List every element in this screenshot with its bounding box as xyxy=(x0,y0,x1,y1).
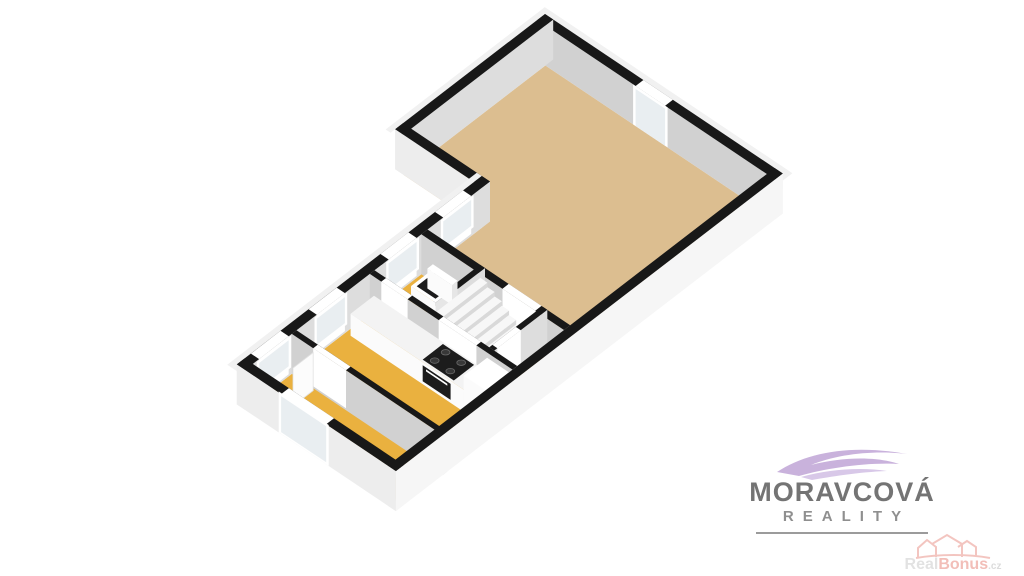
watermark-text: RealBonus.cz xyxy=(888,556,1018,574)
cooktop-burners-1 xyxy=(457,360,466,365)
cooktop-burners-2 xyxy=(430,358,439,363)
wall-sw-exterior-face-u xyxy=(396,465,404,511)
agency-logo: MORAVCOVÁ REALITY xyxy=(742,444,942,534)
cooktop-burners-0 xyxy=(441,350,450,355)
logo-swoosh-icon xyxy=(767,444,917,480)
watermark-real: Real xyxy=(905,556,939,573)
floorplan-page: MORAVCOVÁ REALITY RealBonus.cz xyxy=(0,0,1024,576)
watermark: RealBonus.cz xyxy=(888,533,1018,574)
watermark-bonus: Bonus xyxy=(938,556,988,573)
cooktop-burners-3 xyxy=(446,368,455,373)
logo-title: MORAVCOVÁ xyxy=(742,478,942,506)
watermark-tld: .cz xyxy=(988,561,1001,572)
logo-subtitle: REALITY xyxy=(742,509,942,526)
